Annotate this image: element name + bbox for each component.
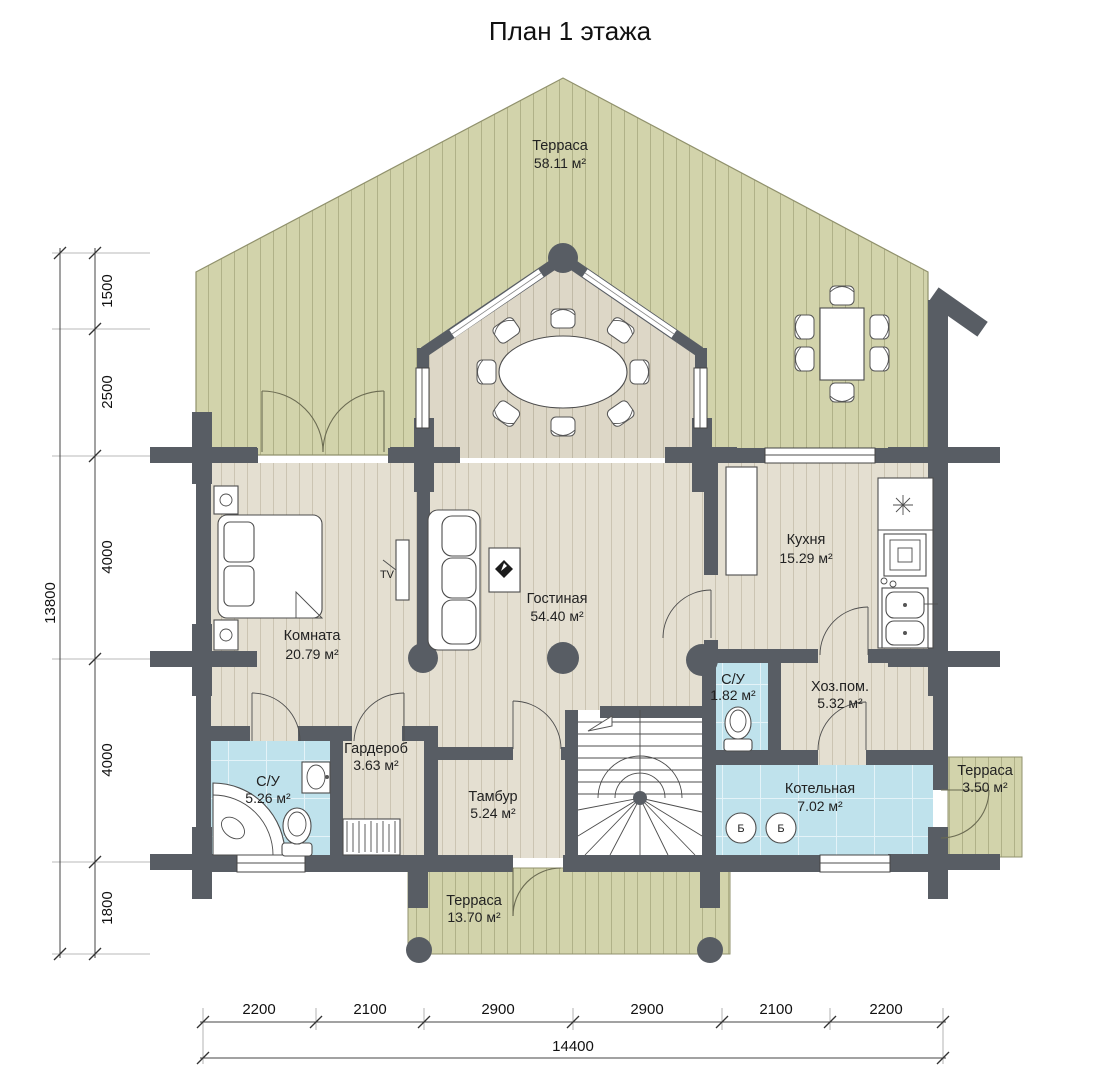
dim-h-5: 2200 xyxy=(869,1001,902,1018)
dim-h-total: 14400 xyxy=(552,1038,594,1055)
window-prow-right xyxy=(694,368,707,428)
column-center xyxy=(547,642,579,674)
nightstand xyxy=(214,486,238,514)
svg-text:Терраса: Терраса xyxy=(532,138,589,154)
dimension-left: 1500 2500 4000 4000 1800 13800 xyxy=(42,247,150,960)
window-kitchen-top xyxy=(765,448,875,463)
room-label-wardrobe: Гардероб 3.63 м² xyxy=(344,741,408,773)
dimension-bottom: 2200 2100 2900 2900 2100 2200 14400 xyxy=(197,1001,949,1064)
sofa xyxy=(428,510,480,650)
tv-label: TV xyxy=(380,569,395,581)
dim-v-2: 4000 xyxy=(99,540,116,573)
stair-post xyxy=(633,791,647,805)
svg-text:Котельная: Котельная xyxy=(785,781,855,797)
boiler-tank: Б xyxy=(726,813,756,843)
svg-text:58.11 м²: 58.11 м² xyxy=(534,155,587,171)
boiler-label: Б xyxy=(777,823,784,835)
svg-text:5.24 м²: 5.24 м² xyxy=(470,805,516,821)
room-label-terrace-bottom: Терраса 13.70 м² xyxy=(446,893,503,925)
svg-text:1.82 м²: 1.82 м² xyxy=(710,687,756,703)
dim-h-0: 2200 xyxy=(242,1001,275,1018)
window-boiler-room xyxy=(820,855,890,872)
svg-text:Гардероб: Гардероб xyxy=(344,741,408,757)
svg-text:3.50 м²: 3.50 м² xyxy=(962,779,1008,795)
room-label-terrace-top: Терраса 58.11 м² xyxy=(532,138,589,171)
column-right xyxy=(686,644,718,676)
dim-v-4: 1800 xyxy=(99,891,116,924)
oven xyxy=(884,534,926,576)
room-label-vestibule: Тамбур 5.24 м² xyxy=(468,789,517,821)
kitchen-cupboard xyxy=(726,467,757,575)
dim-v-1: 2500 xyxy=(99,375,116,408)
room-label-terrace-small: Терраса 3.50 м² xyxy=(957,763,1014,795)
sink-bathroom xyxy=(302,762,330,793)
svg-text:13.70 м²: 13.70 м² xyxy=(447,909,501,925)
toilet-bathroom xyxy=(282,808,312,856)
dim-v-total: 13800 xyxy=(42,582,59,624)
dim-v-0: 1500 xyxy=(99,274,116,307)
bed xyxy=(218,515,322,618)
toilet-wc xyxy=(724,707,752,751)
svg-text:Гостиная: Гостиная xyxy=(527,591,588,607)
room-label-utility: Хоз.пом. 5.32 м² xyxy=(811,679,869,711)
svg-text:Терраса: Терраса xyxy=(446,893,503,909)
floor-plan-drawing: План 1 этажа xyxy=(0,0,1109,1080)
svg-text:Тамбур: Тамбур xyxy=(468,789,517,805)
column-terrace-left xyxy=(406,937,432,963)
svg-text:5.32 м²: 5.32 м² xyxy=(817,695,863,711)
column-apex xyxy=(548,243,578,273)
dim-h-4: 2100 xyxy=(759,1001,792,1018)
dim-h-2: 2900 xyxy=(481,1001,514,1018)
svg-text:Хоз.пом.: Хоз.пом. xyxy=(811,679,869,695)
room-label-living: Гостиная 54.40 м² xyxy=(527,591,588,624)
svg-text:С/У: С/У xyxy=(256,774,281,790)
svg-text:Терраса: Терраса xyxy=(957,763,1014,779)
svg-text:Кухня: Кухня xyxy=(787,532,826,548)
nightstand xyxy=(214,620,238,650)
dim-h-3: 2900 xyxy=(630,1001,663,1018)
page-title: План 1 этажа xyxy=(489,16,652,46)
column-terrace-right xyxy=(697,937,723,963)
svg-text:5.26 м²: 5.26 м² xyxy=(245,790,291,806)
fireplace xyxy=(489,548,520,592)
window-bathroom xyxy=(237,855,305,872)
dining-table xyxy=(477,309,649,436)
dim-h-1: 2100 xyxy=(353,1001,386,1018)
svg-text:54.40 м²: 54.40 м² xyxy=(530,608,584,624)
svg-text:С/У: С/У xyxy=(721,672,746,688)
svg-text:20.79 м²: 20.79 м² xyxy=(285,646,339,662)
window-prow-left xyxy=(416,368,429,428)
svg-text:Комната: Комната xyxy=(284,628,342,644)
boiler-tank: Б xyxy=(766,813,796,843)
boiler-label: Б xyxy=(737,823,744,835)
svg-text:7.02 м²: 7.02 м² xyxy=(797,798,843,814)
floor-plan-page: План 1 этажа xyxy=(0,0,1109,1080)
wardrobe-unit xyxy=(343,819,400,855)
dim-v-3: 4000 xyxy=(99,743,116,776)
svg-text:3.63 м²: 3.63 м² xyxy=(353,757,399,773)
kitchen-counter xyxy=(878,478,938,648)
svg-text:15.29 м²: 15.29 м² xyxy=(779,550,833,566)
